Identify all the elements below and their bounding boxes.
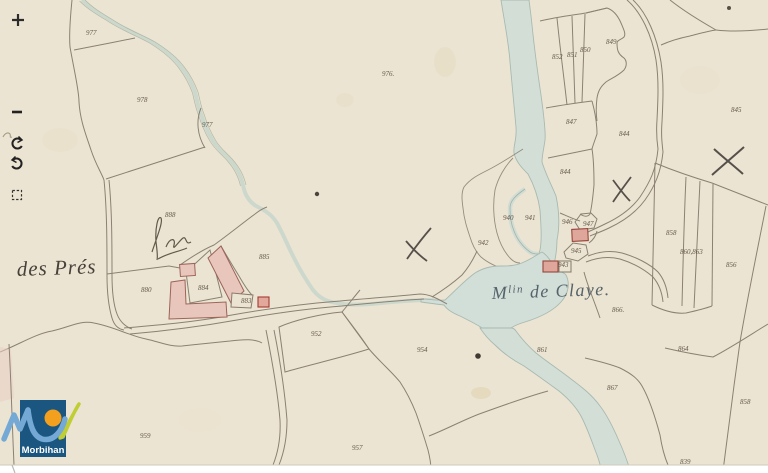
svg-text:884: 884	[198, 284, 209, 292]
svg-text:885: 885	[259, 253, 270, 261]
svg-text:860,863: 860,863	[680, 248, 703, 256]
svg-text:888: 888	[165, 211, 176, 219]
svg-text:978: 978	[137, 96, 148, 104]
svg-text:957: 957	[352, 444, 363, 452]
svg-text:941: 941	[525, 214, 536, 222]
svg-text:945: 945	[571, 247, 582, 255]
svg-text:864: 864	[678, 345, 689, 353]
svg-text:844: 844	[560, 168, 571, 176]
svg-text:976.: 976.	[382, 70, 395, 78]
svg-text:858: 858	[666, 229, 677, 237]
svg-text:947: 947	[583, 220, 594, 228]
svg-text:847: 847	[566, 118, 577, 126]
svg-text:850: 850	[580, 46, 591, 54]
svg-text:856: 856	[726, 261, 737, 269]
svg-text:849: 849	[606, 38, 617, 46]
svg-text:des Prés: des Prés	[16, 254, 97, 281]
svg-text:942: 942	[478, 239, 489, 247]
svg-text:977: 977	[86, 29, 97, 37]
svg-text:940: 940	[503, 214, 514, 222]
svg-text:883: 883	[241, 297, 252, 305]
svg-text:844: 844	[619, 130, 630, 138]
svg-text:858: 858	[740, 398, 751, 406]
svg-text:861: 861	[537, 346, 548, 354]
svg-text:946: 946	[562, 218, 573, 226]
svg-text:851: 851	[567, 51, 578, 59]
svg-text:977: 977	[202, 121, 213, 129]
svg-text:943: 943	[558, 261, 569, 269]
svg-text:Morbihan: Morbihan	[22, 445, 65, 456]
svg-text:867: 867	[607, 384, 618, 392]
svg-text:852: 852	[552, 53, 563, 61]
svg-text:954: 954	[417, 346, 428, 354]
svg-text:845: 845	[731, 106, 742, 114]
svg-text:880: 880	[141, 286, 152, 294]
svg-text:959: 959	[140, 432, 151, 440]
svg-text:866.: 866.	[612, 306, 625, 314]
svg-text:952: 952	[311, 330, 322, 338]
